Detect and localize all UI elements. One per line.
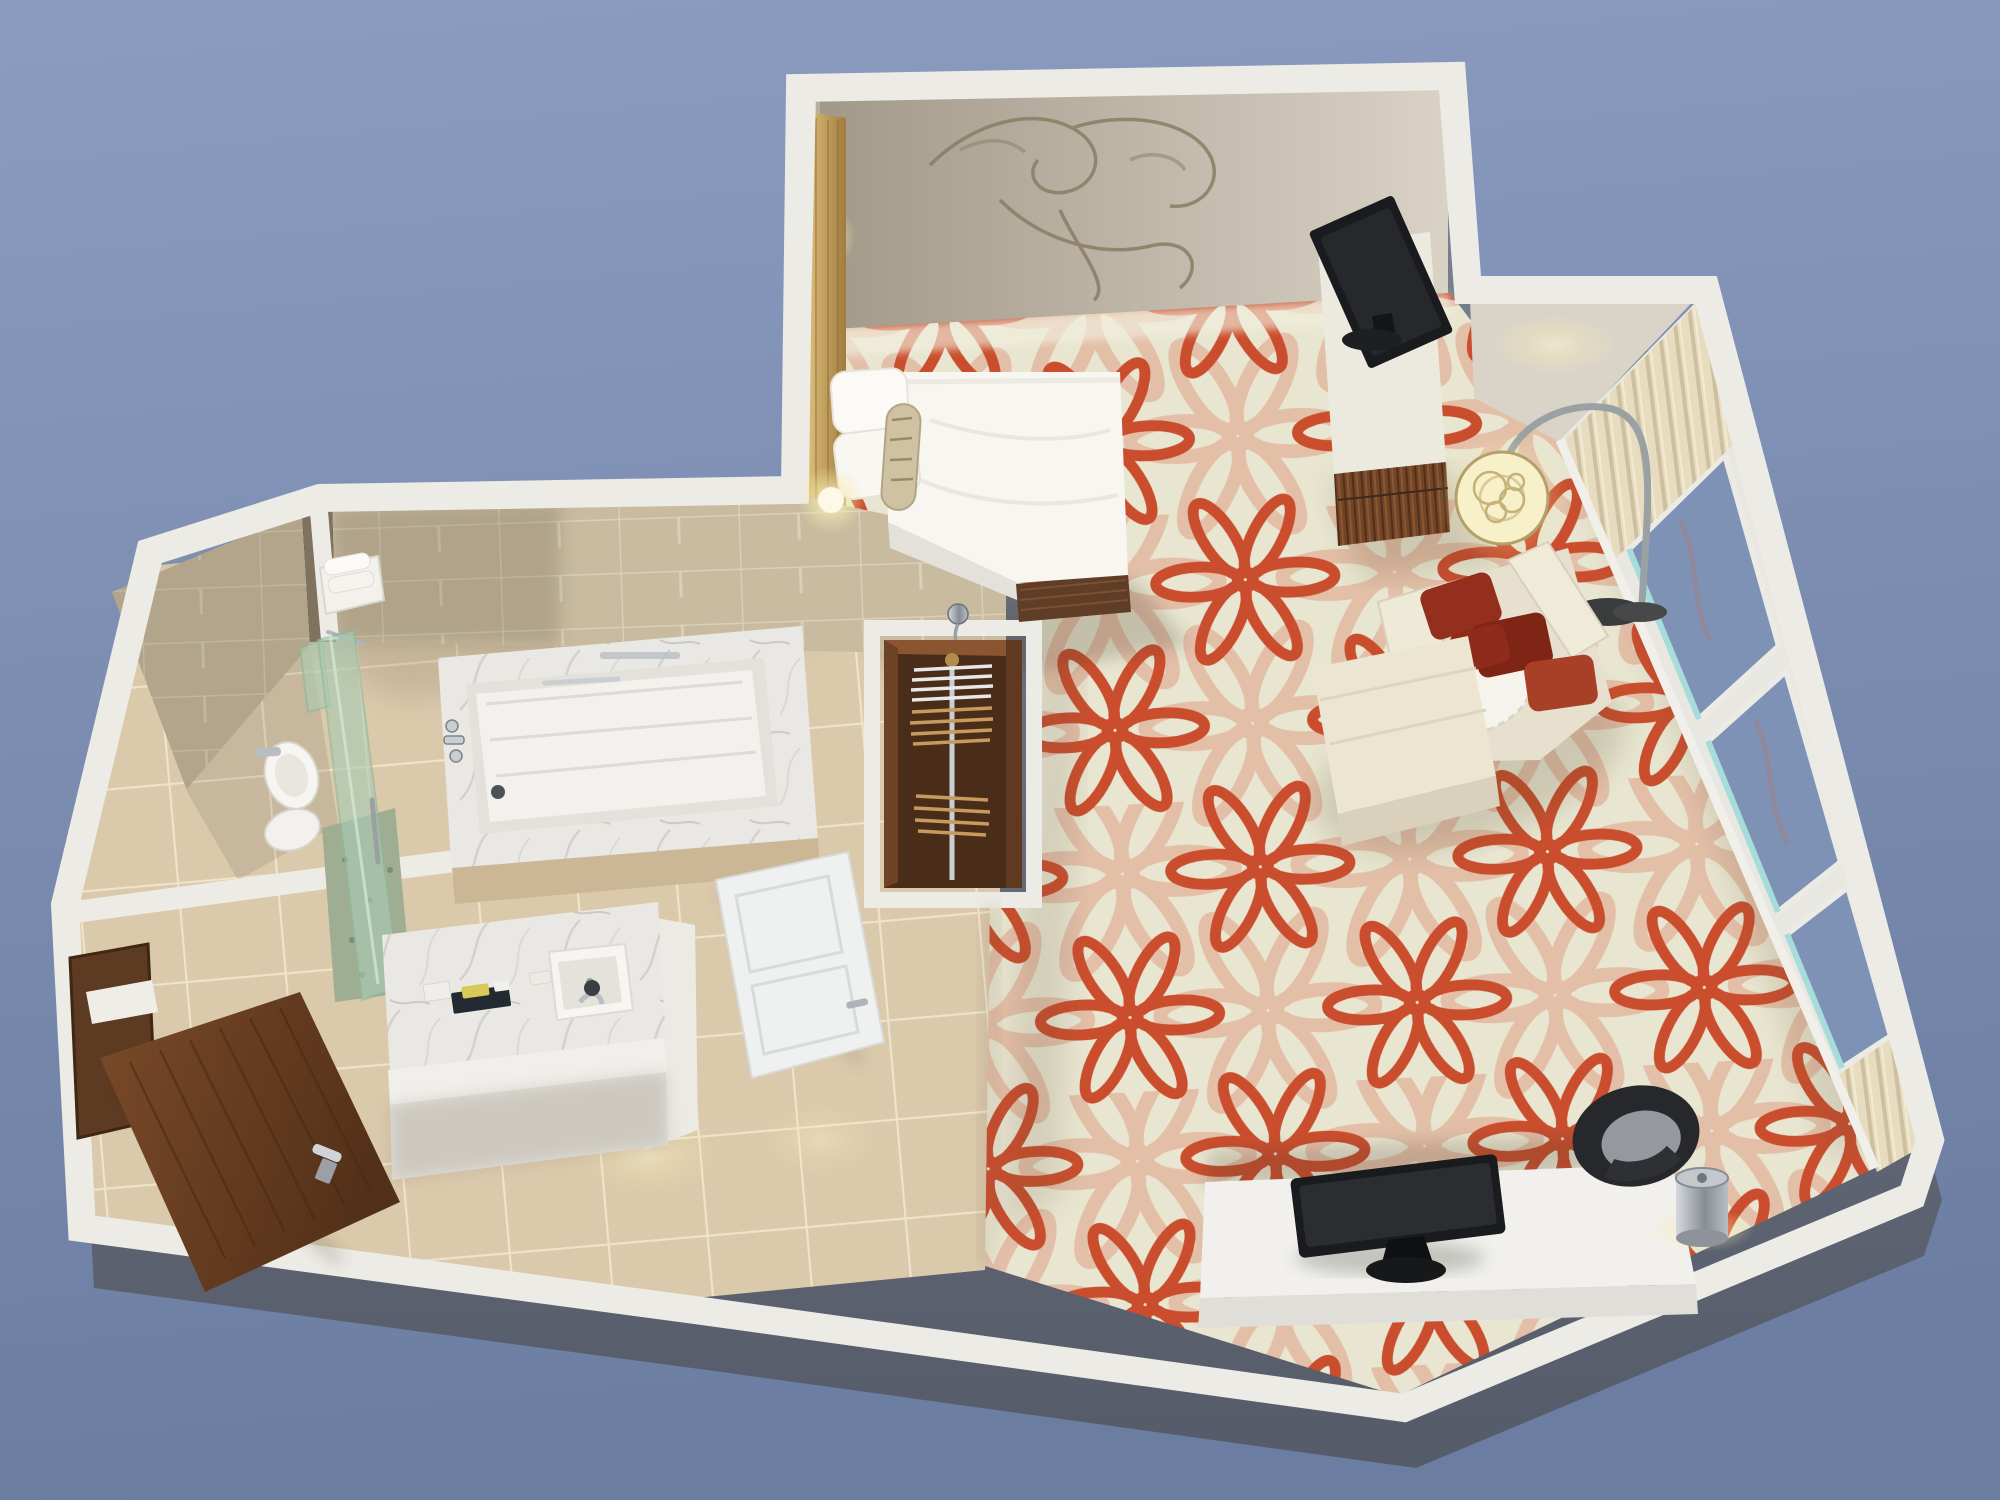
alcove-downlight: [1493, 315, 1617, 375]
closet: [884, 640, 1022, 888]
tub-rail: [600, 652, 680, 659]
flush-handle: [255, 747, 282, 758]
bolster-pillow: [880, 403, 921, 511]
render-canvas: [0, 0, 2000, 1500]
tub-drain: [491, 785, 505, 799]
wall-sconce-lower: [797, 466, 865, 534]
ceiling-light-pool: [760, 1104, 880, 1176]
hotel-room-3d-render: [0, 0, 2000, 1500]
vanity: [382, 902, 698, 1180]
